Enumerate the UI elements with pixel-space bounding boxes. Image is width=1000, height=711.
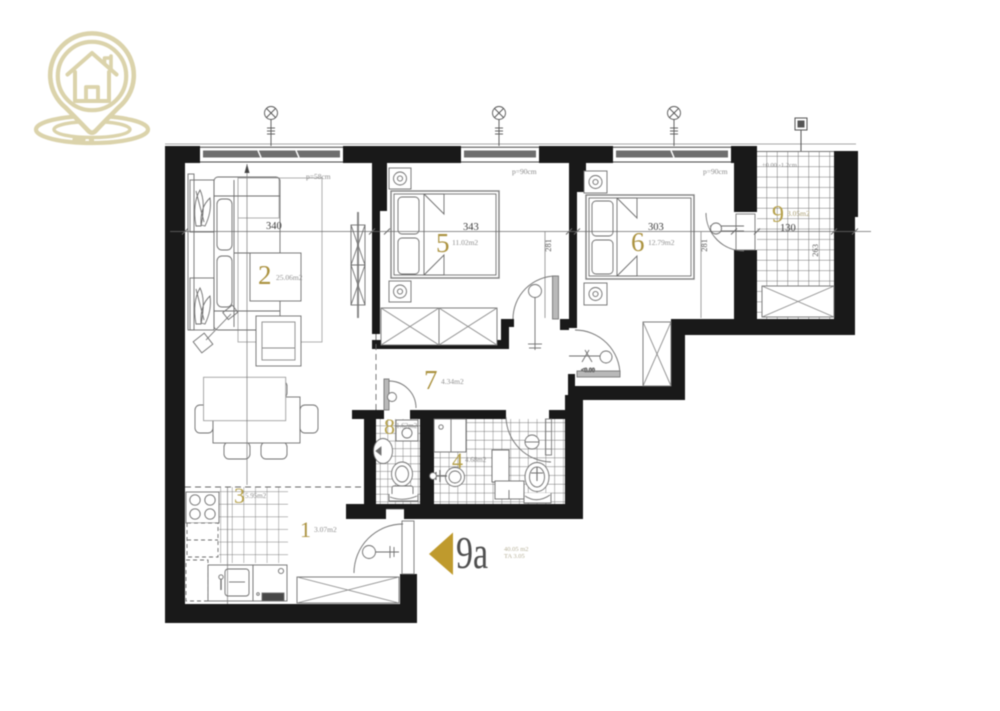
svg-text:5.95m2: 5.95m2 [245,492,267,500]
svg-text:263: 263 [810,244,820,257]
svg-text:303: 303 [648,222,664,233]
svg-text:p=90cm: p=90cm [703,167,728,176]
svg-text:6: 6 [631,227,645,257]
svg-text:12.79m2: 12.79m2 [648,238,675,247]
svg-text:4: 4 [452,448,463,473]
svg-text:340: 340 [266,221,282,232]
svg-text:3.07m2: 3.07m2 [314,525,337,534]
svg-text:4.34m2: 4.34m2 [441,377,464,386]
svg-text:343: 343 [463,222,479,233]
svg-text:40.05 m2: 40.05 m2 [504,546,529,553]
svg-text:p=90cm: p=90cm [512,167,537,176]
svg-text:3: 3 [234,483,245,508]
svg-text:25.06m2: 25.06m2 [276,273,303,282]
svg-text:2: 2 [258,260,272,290]
svg-text:281: 281 [543,239,553,252]
svg-text:TA 3.05: TA 3.05 [504,553,525,560]
svg-text:281: 281 [699,239,709,252]
svg-text:11.02m2: 11.02m2 [452,238,478,247]
svg-text:5: 5 [436,228,450,258]
svg-text:4.68m2: 4.68m2 [465,456,487,464]
svg-text:7: 7 [424,365,438,395]
svg-text:<0.00: <0.00 [581,368,595,374]
svg-text:8: 8 [384,414,395,439]
svg-text:p=58cm: p=58cm [306,172,331,181]
svg-text:3.05m2: 3.05m2 [787,209,810,218]
svg-text:9a: 9a [456,527,488,578]
svg-text:1: 1 [300,517,311,542]
svg-text:1.62m2: 1.62m2 [396,422,418,430]
svg-text:130: 130 [780,223,796,234]
